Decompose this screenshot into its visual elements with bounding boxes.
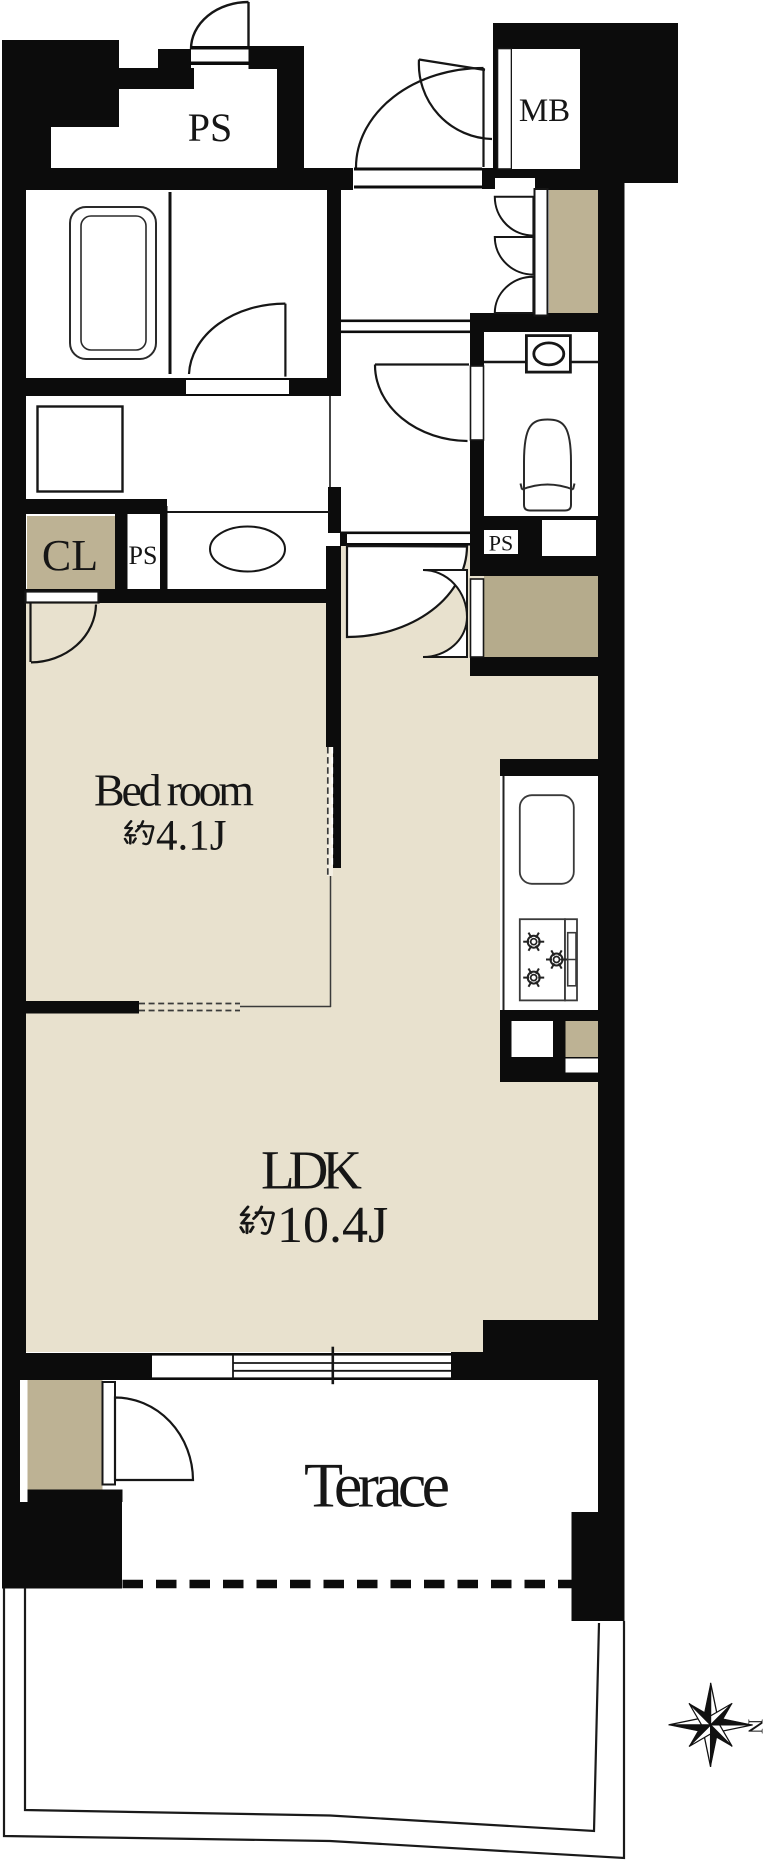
svg-text:Terace: Terace [304,1450,450,1521]
svg-text:LDK: LDK [261,1140,362,1201]
svg-text:10.4J: 10.4J [277,1197,388,1254]
svg-text:Bed room: Bed room [94,765,254,816]
svg-text:PS: PS [188,105,233,150]
svg-text:MB: MB [519,93,570,129]
svg-text:PS: PS [489,531,513,556]
svg-text:4.1J: 4.1J [156,813,226,860]
svg-text:CL: CL [42,531,98,580]
svg-text:PS: PS [129,541,158,570]
svg-text:N: N [744,1719,768,1734]
